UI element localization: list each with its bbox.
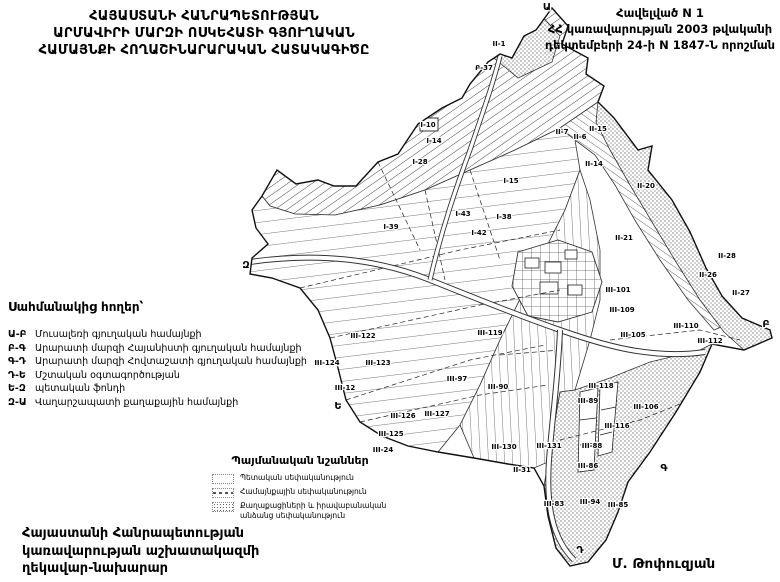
parcel-label: I-28 — [412, 158, 427, 166]
parcel-label: II-15 — [589, 125, 607, 133]
parcel-label: II-27 — [732, 289, 750, 297]
annex-line: դեկտեմբերի 24-ի N 1847-Ն որոշման — [543, 38, 777, 54]
signs-legend-item: Համայնքային սեփականություն — [212, 487, 388, 498]
parcel-label: III-127 — [424, 410, 449, 418]
parcel-label: II-14 — [585, 160, 603, 168]
parcel-label: III-123 — [365, 359, 390, 367]
settlement-grid — [512, 240, 602, 322]
community-ownership-swatch — [212, 488, 234, 498]
parcel-label: III-109 — [609, 306, 634, 314]
annex-line: Հավելված N 1 — [543, 6, 777, 22]
parcel-label: II-6 — [574, 133, 587, 141]
document-title: ՀԱՅԱՍՏԱՆԻ ՀԱՆՐԱՊԵՏՈՒԹՅԱՆ ԱՐՄԱՎԻՐԻ ՄԱՐԶԻ … — [8, 8, 400, 59]
parcel-label: I-39 — [383, 223, 398, 231]
parcel-label: II-31 — [513, 466, 531, 474]
parcel-label: III-130 — [491, 443, 516, 451]
parcel-label: III-88 — [582, 442, 603, 450]
annex-reference: Հավելված N 1 ՀՀ կառավարության 2003 թվակա… — [543, 6, 777, 54]
parcel-label: Բ-37 — [475, 64, 493, 72]
parcel-label: I-38 — [496, 213, 511, 221]
border-segment-code: Գ-Դ — [8, 355, 35, 369]
title-line: ՀԱՄԱՅՆՔԻ ՀՈՂԱՇԻՆԱՐԱՐԱԿԱՆ ՀԱՏԱԿԱԳԻԾԸ — [8, 42, 400, 59]
parcel-label: III-89 — [578, 397, 599, 405]
border-segment-label: պետական ֆոնդի — [35, 382, 125, 396]
border-segment-label: Վաղարշապատի քաղաքային համայնքի — [35, 396, 238, 410]
parcel-label: III-12 — [335, 384, 356, 392]
signatory-title: Հայաստանի Հանրապետության կառավարության ա… — [22, 525, 259, 578]
parcel-label: III-101 — [605, 286, 630, 294]
border-segment-code: Բ-Գ — [8, 342, 35, 356]
boundary-point-letter: Գ — [660, 463, 668, 474]
conventional-signs-heading: Պայմանական նշաններ — [212, 454, 388, 467]
parcel-label: III-118 — [588, 382, 613, 390]
footer-line: կառավարության աշխատակազմի — [22, 543, 259, 561]
border-legend-item: Ե-Զպետական ֆոնդի — [8, 382, 258, 396]
bordering-lands-heading: Սահմանակից հողեր՝ — [8, 300, 258, 314]
boundary-point-letter: Դ — [576, 545, 584, 556]
state-ownership-swatch — [212, 474, 234, 484]
private-ownership-swatch — [212, 502, 234, 512]
border-segment-code: Ա-Բ — [8, 328, 35, 342]
parcel-label: III-125 — [378, 430, 403, 438]
parcel-label: III-85 — [608, 501, 629, 509]
cadastral-map: II-1Բ-37I-10I-14I-28I-15I-43I-38I-42I-39… — [0, 0, 780, 582]
parcel-label: III-90 — [488, 383, 509, 391]
parcel-label: I-42 — [471, 229, 486, 237]
border-legend-item: Գ-ԴԱրարատի մարզի Հովտաշատի գյուղական համ… — [8, 355, 258, 369]
border-segment-label: Արարատի մարզի Հովտաշատի գյուղական համայն… — [35, 355, 307, 369]
border-legend-item: Ա-ԲՄուսալեռի գյուղական համայնքի — [8, 328, 258, 342]
signature: Մ. Թոփուզյան — [612, 556, 715, 572]
parcel-label: III-24 — [373, 446, 394, 454]
conventional-signs-legend: Պայմանական նշաններ Պետական սեփականությու… — [212, 454, 388, 524]
parcel-label: I-10 — [420, 121, 435, 129]
border-legend-item: Զ-ԱՎաղարշապատի քաղաքային համայնքի — [8, 396, 258, 410]
annex-line: ՀՀ կառավարության 2003 թվականի — [543, 22, 777, 38]
title-line: ՀԱՅԱՍՏԱՆԻ ՀԱՆՐԱՊԵՏՈՒԹՅԱՆ — [8, 8, 400, 25]
signs-legend-label: Պետական սեփականություն — [240, 473, 354, 483]
signs-legend-label: Համայնքային սեփականություն — [240, 487, 367, 497]
footer-line: ղեկավար-նախարար — [22, 560, 259, 578]
boundary-point-letter: Բ — [762, 319, 769, 330]
parcel-label: III-124 — [314, 359, 339, 367]
parcel-label: II-26 — [699, 271, 717, 279]
parcel-label: III-97 — [447, 375, 468, 383]
parcel-label: II-7 — [556, 128, 569, 136]
building-parcel — [568, 285, 582, 295]
boundary-point-letter: Ե — [334, 401, 341, 412]
parcel-label: II-20 — [637, 182, 655, 190]
building-parcel — [565, 250, 577, 259]
border-legend-item: Բ-ԳԱրարատի մարզի Հայանիստի գյուղական համ… — [8, 342, 258, 356]
border-segment-code: Դ-Ե — [8, 369, 35, 383]
signs-legend-item: Պետական սեփականություն — [212, 473, 388, 484]
title-line: ԱՐՄԱՎԻՐԻ ՄԱՐԶԻ ՈՍԿԵՀԱՏԻ ԳՅՈՒՂԱԿԱՆ — [8, 25, 400, 42]
border-segment-code: Զ-Ա — [8, 396, 35, 410]
parcel-label: III-110 — [673, 322, 698, 330]
parcel-label: III-126 — [390, 412, 415, 420]
parcel-label: III-122 — [350, 332, 375, 340]
parcel-label: III-119 — [477, 329, 502, 337]
border-legend-items: Ա-ԲՄուսալեռի գյուղական համայնքիԲ-ԳԱրարատ… — [8, 328, 258, 409]
parcel-label: III-112 — [697, 337, 722, 345]
parcel-label: II-28 — [718, 252, 736, 260]
parcel-label: III-131 — [536, 442, 561, 450]
signs-legend-label: Քաղաքացիների և իրավաբանական անձանց սեփակ… — [240, 501, 388, 521]
footer-line: Հայաստանի Հանրապետության — [22, 525, 259, 543]
parcel-label: II-1 — [493, 40, 506, 48]
parcel-label: I-15 — [503, 177, 518, 185]
boundary-point-letter: Զ — [242, 260, 249, 271]
parcel-label: I-43 — [455, 210, 470, 218]
parcel-label: III-86 — [578, 462, 599, 470]
parcel-label: III-94 — [580, 498, 601, 506]
parcel-label: III-116 — [604, 422, 629, 430]
building-parcel — [525, 258, 539, 268]
parcel-label: III-83 — [544, 500, 565, 508]
parcel-label: II-21 — [615, 234, 633, 242]
parcel-label: III-105 — [620, 331, 645, 339]
building-parcel — [540, 282, 558, 294]
signs-legend-item: Քաղաքացիների և իրավաբանական անձանց սեփակ… — [212, 501, 388, 521]
parcel-label: I-14 — [426, 137, 441, 145]
border-segment-label: Արարատի մարզի Հայանիստի գյուղական համայն… — [35, 342, 302, 356]
parcel-label: III-106 — [633, 403, 658, 411]
border-segment-code: Ե-Զ — [8, 382, 35, 396]
border-segment-label: Մշտական օգտագործության — [35, 369, 180, 383]
border-legend-item: Դ-ԵՄշտական օգտագործության — [8, 369, 258, 383]
bordering-lands-legend: Սահմանակից հողեր՝ Ա-ԲՄուսալեռի գյուղական… — [8, 300, 258, 409]
border-segment-label: Մուսալեռի գյուղական համայնքի — [35, 328, 202, 342]
building-parcel — [545, 262, 561, 273]
signs-legend-items: Պետական սեփականությունՀամայնքային սեփակա… — [212, 473, 388, 521]
